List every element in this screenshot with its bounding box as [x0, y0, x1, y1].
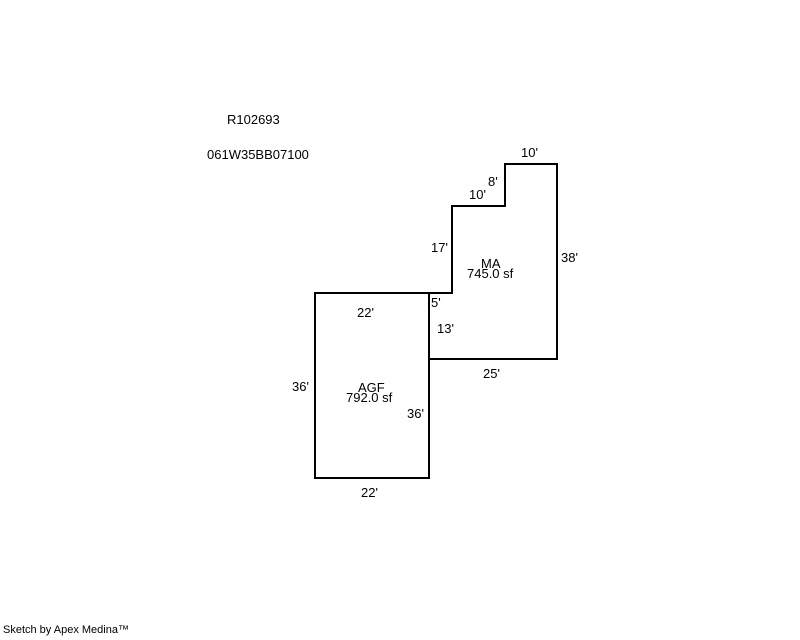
dim-ma-notch-vertical: 8'	[488, 174, 498, 189]
area-size-agf: 792.0 sf	[346, 390, 392, 405]
dim-agf-left: 36'	[292, 379, 309, 394]
dim-agf-right: 36'	[407, 406, 424, 421]
dim-ma-notch-horizontal: 10'	[469, 187, 486, 202]
sketch-credit: Sketch by Apex Medina™	[3, 624, 129, 637]
dim-ma-right: 38'	[561, 250, 578, 265]
dim-ma-step: 5'	[431, 295, 441, 310]
dim-ma-bottom: 25'	[483, 366, 500, 381]
sketch-page: R102693 061W35BB07100 10' 8' 10' 17' 38'…	[0, 0, 800, 640]
building-sketch-drawing	[0, 0, 800, 640]
dim-ma-left-upper: 17'	[431, 240, 448, 255]
dim-agf-top: 22'	[357, 305, 374, 320]
dim-ma-left-lower: 13'	[437, 321, 454, 336]
dim-ma-top: 10'	[521, 145, 538, 160]
area-size-ma: 745.0 sf	[467, 266, 513, 281]
dim-agf-bottom: 22'	[361, 485, 378, 500]
